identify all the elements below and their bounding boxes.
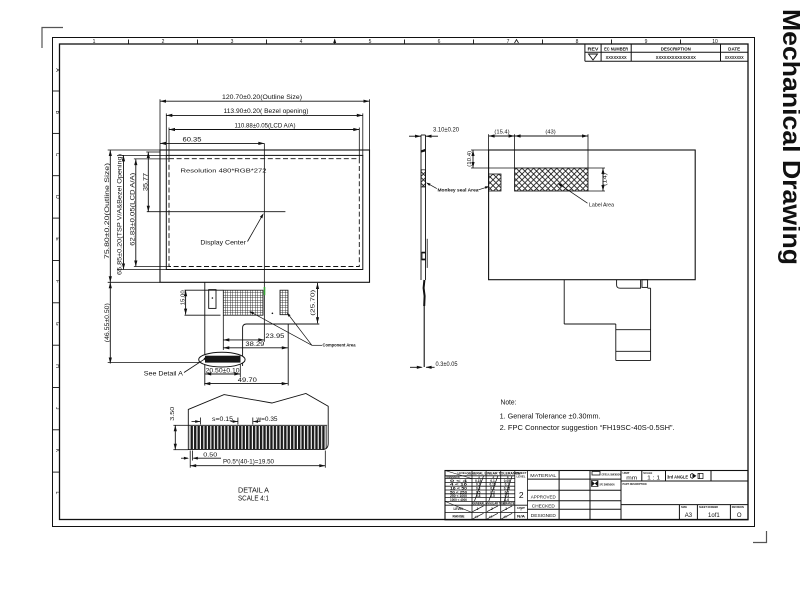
svg-text:3: 3: [505, 507, 507, 511]
svg-text:9: 9: [645, 39, 648, 45]
svg-text:Label Area: Label Area: [589, 202, 615, 208]
svg-text:8: 8: [576, 39, 579, 45]
svg-text:(14): (14): [602, 172, 608, 185]
svg-text:23.95: 23.95: [265, 333, 285, 340]
svg-text:49.70: 49.70: [238, 377, 258, 384]
svg-text:6: 6: [438, 39, 441, 45]
svg-text:GENERAL ANGULAR TOLERANCE: GENERAL ANGULAR TOLERANCE: [472, 502, 515, 506]
svg-text:±1°: ±1°: [489, 515, 494, 519]
svg-text:SCALE 4:1: SCALE 4:1: [238, 496, 269, 503]
svg-text:60.35: 60.35: [183, 136, 202, 143]
svg-text:REV: REV: [588, 46, 599, 51]
svg-text:D: D: [54, 195, 60, 199]
svg-text:(25.70): (25.70): [310, 290, 316, 316]
svg-text:Note:: Note:: [501, 398, 517, 407]
svg-text:A3: A3: [685, 513, 693, 519]
svg-text:1: 1: [93, 39, 96, 45]
svg-text:3.10±0.20: 3.10±0.20: [433, 127, 460, 133]
svg-text:2. FPC Connector suggestion “: 2. FPC Connector suggestion “FH19SC-40S-…: [500, 423, 675, 432]
svg-text:5: 5: [369, 39, 372, 45]
svg-text:15.00: 15.00: [181, 290, 187, 305]
svg-text:DESCRIPTION: DESCRIPTION: [661, 46, 691, 51]
svg-text:±1°: ±1°: [475, 515, 480, 519]
svg-text:O: O: [737, 513, 742, 519]
svg-text:(46.55±0.50): (46.55±0.50): [104, 303, 111, 342]
svg-text:2: 2: [162, 39, 165, 45]
svg-text:3.50: 3.50: [170, 407, 176, 421]
svg-text:CHECKED: CHECKED: [532, 504, 556, 510]
svg-text:XXXXXXXXXXXXXXX: XXXXXXXXXXXXXXX: [656, 55, 696, 60]
svg-text:38.29: 38.29: [245, 341, 265, 348]
svg-text:w=0.35: w=0.35: [255, 417, 278, 423]
svg-text:APPROVED: APPROVED: [531, 494, 556, 500]
svg-text:1. General Tolerance ±0.30mm.: 1. General Tolerance ±0.30mm.: [500, 411, 601, 420]
svg-text:(15.4): (15.4): [494, 129, 509, 135]
svg-text:3rd ANGLE: 3rd ANGLE: [667, 474, 688, 479]
svg-text:75.80±0.20(Outline Size): 75.80±0.20(Outline Size): [104, 163, 111, 259]
svg-text:(10.4): (10.4): [467, 150, 473, 166]
svg-text:Monkey seal Area: Monkey seal Area: [438, 187, 480, 192]
svg-text:CRITICAL DIMENSION: CRITICAL DIMENSION: [602, 473, 621, 477]
svg-text:Resolution 480*RGB*272: Resolution 480*RGB*272: [181, 168, 267, 174]
svg-text:SIZE: SIZE: [681, 505, 687, 509]
svg-text:LEVEL: LEVEL: [454, 507, 464, 511]
svg-text:1: 1: [477, 507, 479, 511]
svg-text:62.83±0.05(LCD A/A): 62.83±0.05(LCD A/A): [129, 173, 136, 246]
svg-text:Display Center: Display Center: [200, 239, 246, 246]
svg-text:C: C: [54, 153, 60, 157]
svg-text:SPC DIMENSION: SPC DIMENSION: [600, 482, 615, 486]
svg-text:Component Area: Component Area: [323, 343, 357, 348]
svg-text:1of1: 1of1: [708, 513, 720, 519]
svg-text:2: 2: [491, 507, 493, 511]
svg-text:0.50: 0.50: [203, 452, 217, 458]
svg-text:(43): (43): [545, 129, 555, 135]
svg-text:LEVEL: LEVEL: [517, 474, 526, 478]
svg-text:F: F: [54, 280, 60, 283]
svg-text:P0.5*(40-1)=19.50: P0.5*(40-1)=19.50: [223, 459, 275, 466]
svg-text:EC NUMBER: EC NUMBER: [604, 46, 628, 51]
svg-text:RANGE: RANGE: [453, 514, 465, 518]
svg-text:DETAIL A: DETAIL A: [238, 487, 269, 494]
svg-text:110.88±0.05(LCD A/A): 110.88±0.05(LCD A/A): [235, 122, 296, 129]
svg-text:10: 10: [712, 39, 718, 45]
svg-text:113.90±0.20( Bezel opening): 113.90±0.20( Bezel opening): [224, 108, 309, 115]
svg-text:See Detail A: See Detail A: [144, 370, 184, 377]
svg-text:G: G: [54, 322, 60, 326]
svg-text:SCALE: SCALE: [643, 471, 652, 475]
svg-text:SHEET NUMBER: SHEET NUMBER: [699, 505, 718, 509]
svg-text:35.77: 35.77: [143, 173, 150, 191]
svg-text:Mechanical Drawing: Mechanical Drawing: [777, 9, 800, 265]
svg-text:MATERIAL: MATERIAL: [530, 473, 556, 479]
svg-text:DATE: DATE: [728, 46, 740, 51]
svg-text:s=0.15: s=0.15: [212, 417, 234, 423]
svg-text:20.50±0.10: 20.50±0.10: [206, 367, 241, 374]
svg-text:0.3±0.05: 0.3±0.05: [436, 362, 459, 368]
svg-text:2: 2: [519, 490, 524, 500]
svg-text:4: 4: [300, 39, 303, 45]
svg-text:REVISION: REVISION: [732, 505, 744, 509]
svg-text:N/A: N/A: [517, 515, 526, 519]
svg-text:XXXXXXXX: XXXXXXXX: [606, 55, 627, 60]
svg-text:7: 7: [507, 39, 510, 45]
svg-text:DESIGNED: DESIGNED: [531, 513, 557, 519]
svg-text:1000 < 4000: 1000 < 4000: [450, 498, 467, 502]
svg-text:H: H: [54, 364, 60, 368]
svg-text:3: 3: [231, 39, 234, 45]
svg-text:65.85±0.20(TSP V/A&Bezel Openi: 65.85±0.20(TSP V/A&Bezel Opening): [117, 154, 124, 275]
svg-text:PART DESCRIPTION: PART DESCRIPTION: [623, 482, 647, 486]
svg-text:120.70±0.20(Outline Size): 120.70±0.20(Outline Size): [222, 94, 302, 101]
svg-text:1 : 1: 1 : 1: [647, 476, 660, 482]
svg-text:±1°: ±1°: [503, 515, 508, 519]
svg-text:XXXXXXXX: XXXXXXXX: [725, 55, 744, 60]
svg-text:L: L: [54, 492, 60, 495]
svg-text:mm: mm: [626, 475, 637, 481]
